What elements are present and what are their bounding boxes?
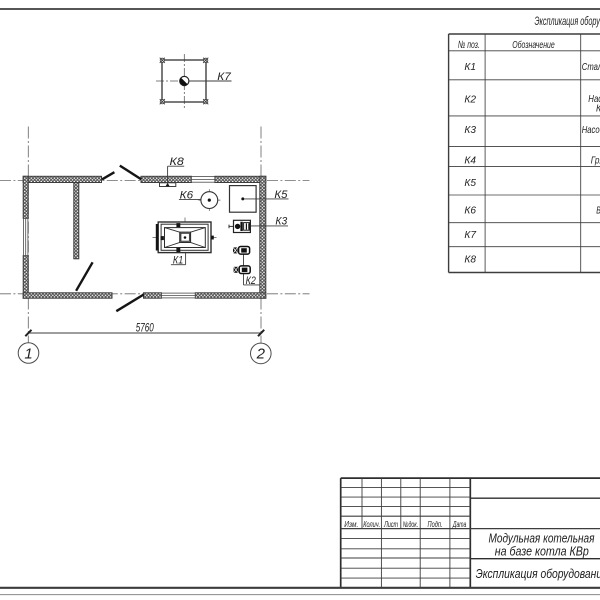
svg-text:К8: К8	[170, 156, 185, 168]
svg-text:5760: 5760	[136, 320, 154, 334]
svg-text:Лист: Лист	[383, 520, 398, 529]
svg-text:Изм.: Изм.	[344, 520, 358, 529]
svg-text:Грязевик: Грязевик	[591, 155, 600, 167]
svg-text:К6: К6	[464, 205, 476, 217]
svg-text:К1: К1	[173, 255, 183, 267]
svg-text:Насос подпиточный: Насос подпиточный	[582, 124, 600, 136]
svg-text:К7: К7	[464, 229, 477, 241]
svg-text:№док.: №док.	[403, 520, 419, 529]
svg-text:Дата: Дата	[452, 520, 466, 529]
svg-text:К8: К8	[464, 254, 476, 266]
svg-text:К6: К6	[180, 189, 194, 201]
svg-text:Подп.: Подп.	[428, 520, 443, 529]
svg-text:Обозначение: Обозначение	[512, 39, 555, 51]
svg-text:Модульная котельная: Модульная котельная	[489, 531, 595, 545]
svg-text:Экспликация оборудования: Экспликация оборудования	[535, 16, 600, 28]
svg-text:Вентилятор: Вентилятор	[596, 205, 600, 217]
svg-text:2: 2	[256, 346, 266, 363]
svg-text:Экспликация оборудования: Экспликация оборудования	[476, 566, 600, 581]
svg-text:К2: К2	[246, 275, 256, 287]
svg-text:К7: К7	[217, 71, 231, 83]
svg-text:К1: К1	[464, 61, 476, 73]
svg-text:К 80-50: К 80-50	[596, 103, 600, 115]
svg-text:К3: К3	[464, 124, 476, 136]
svg-text:Стальной котёл КВр: Стальной котёл КВр	[582, 61, 600, 73]
svg-text:Колич.: Колич.	[363, 520, 380, 529]
svg-text:К5: К5	[274, 189, 288, 201]
svg-text:К3: К3	[275, 215, 288, 227]
svg-text:на базе котла КВр: на базе котла КВр	[495, 544, 589, 558]
svg-text:К4: К4	[464, 154, 476, 166]
svg-text:№ поз.: № поз.	[458, 39, 480, 51]
svg-text:К2: К2	[464, 93, 476, 105]
svg-text:1: 1	[24, 345, 32, 362]
svg-text:К5: К5	[464, 177, 476, 189]
